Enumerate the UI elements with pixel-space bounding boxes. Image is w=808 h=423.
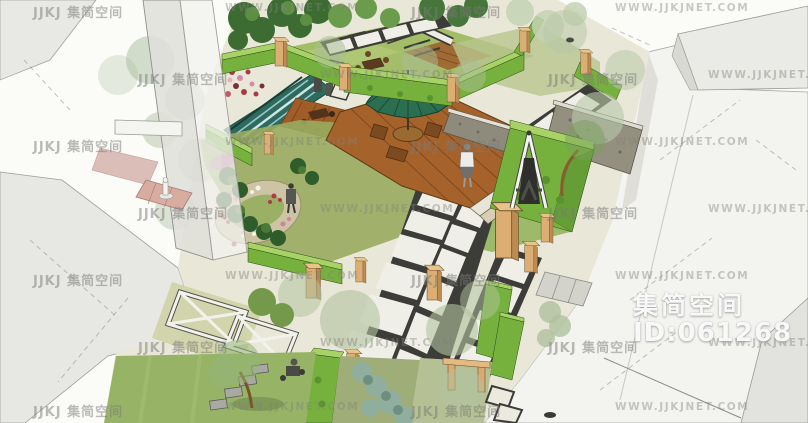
garden-design-screenshot: JJKJ 集简空间WWW.JJKJNET.COMJJKJ 集简空间WWW.JJK… [0,0,808,423]
garden-3d-render [0,0,808,423]
bottom-lawn [104,352,492,423]
